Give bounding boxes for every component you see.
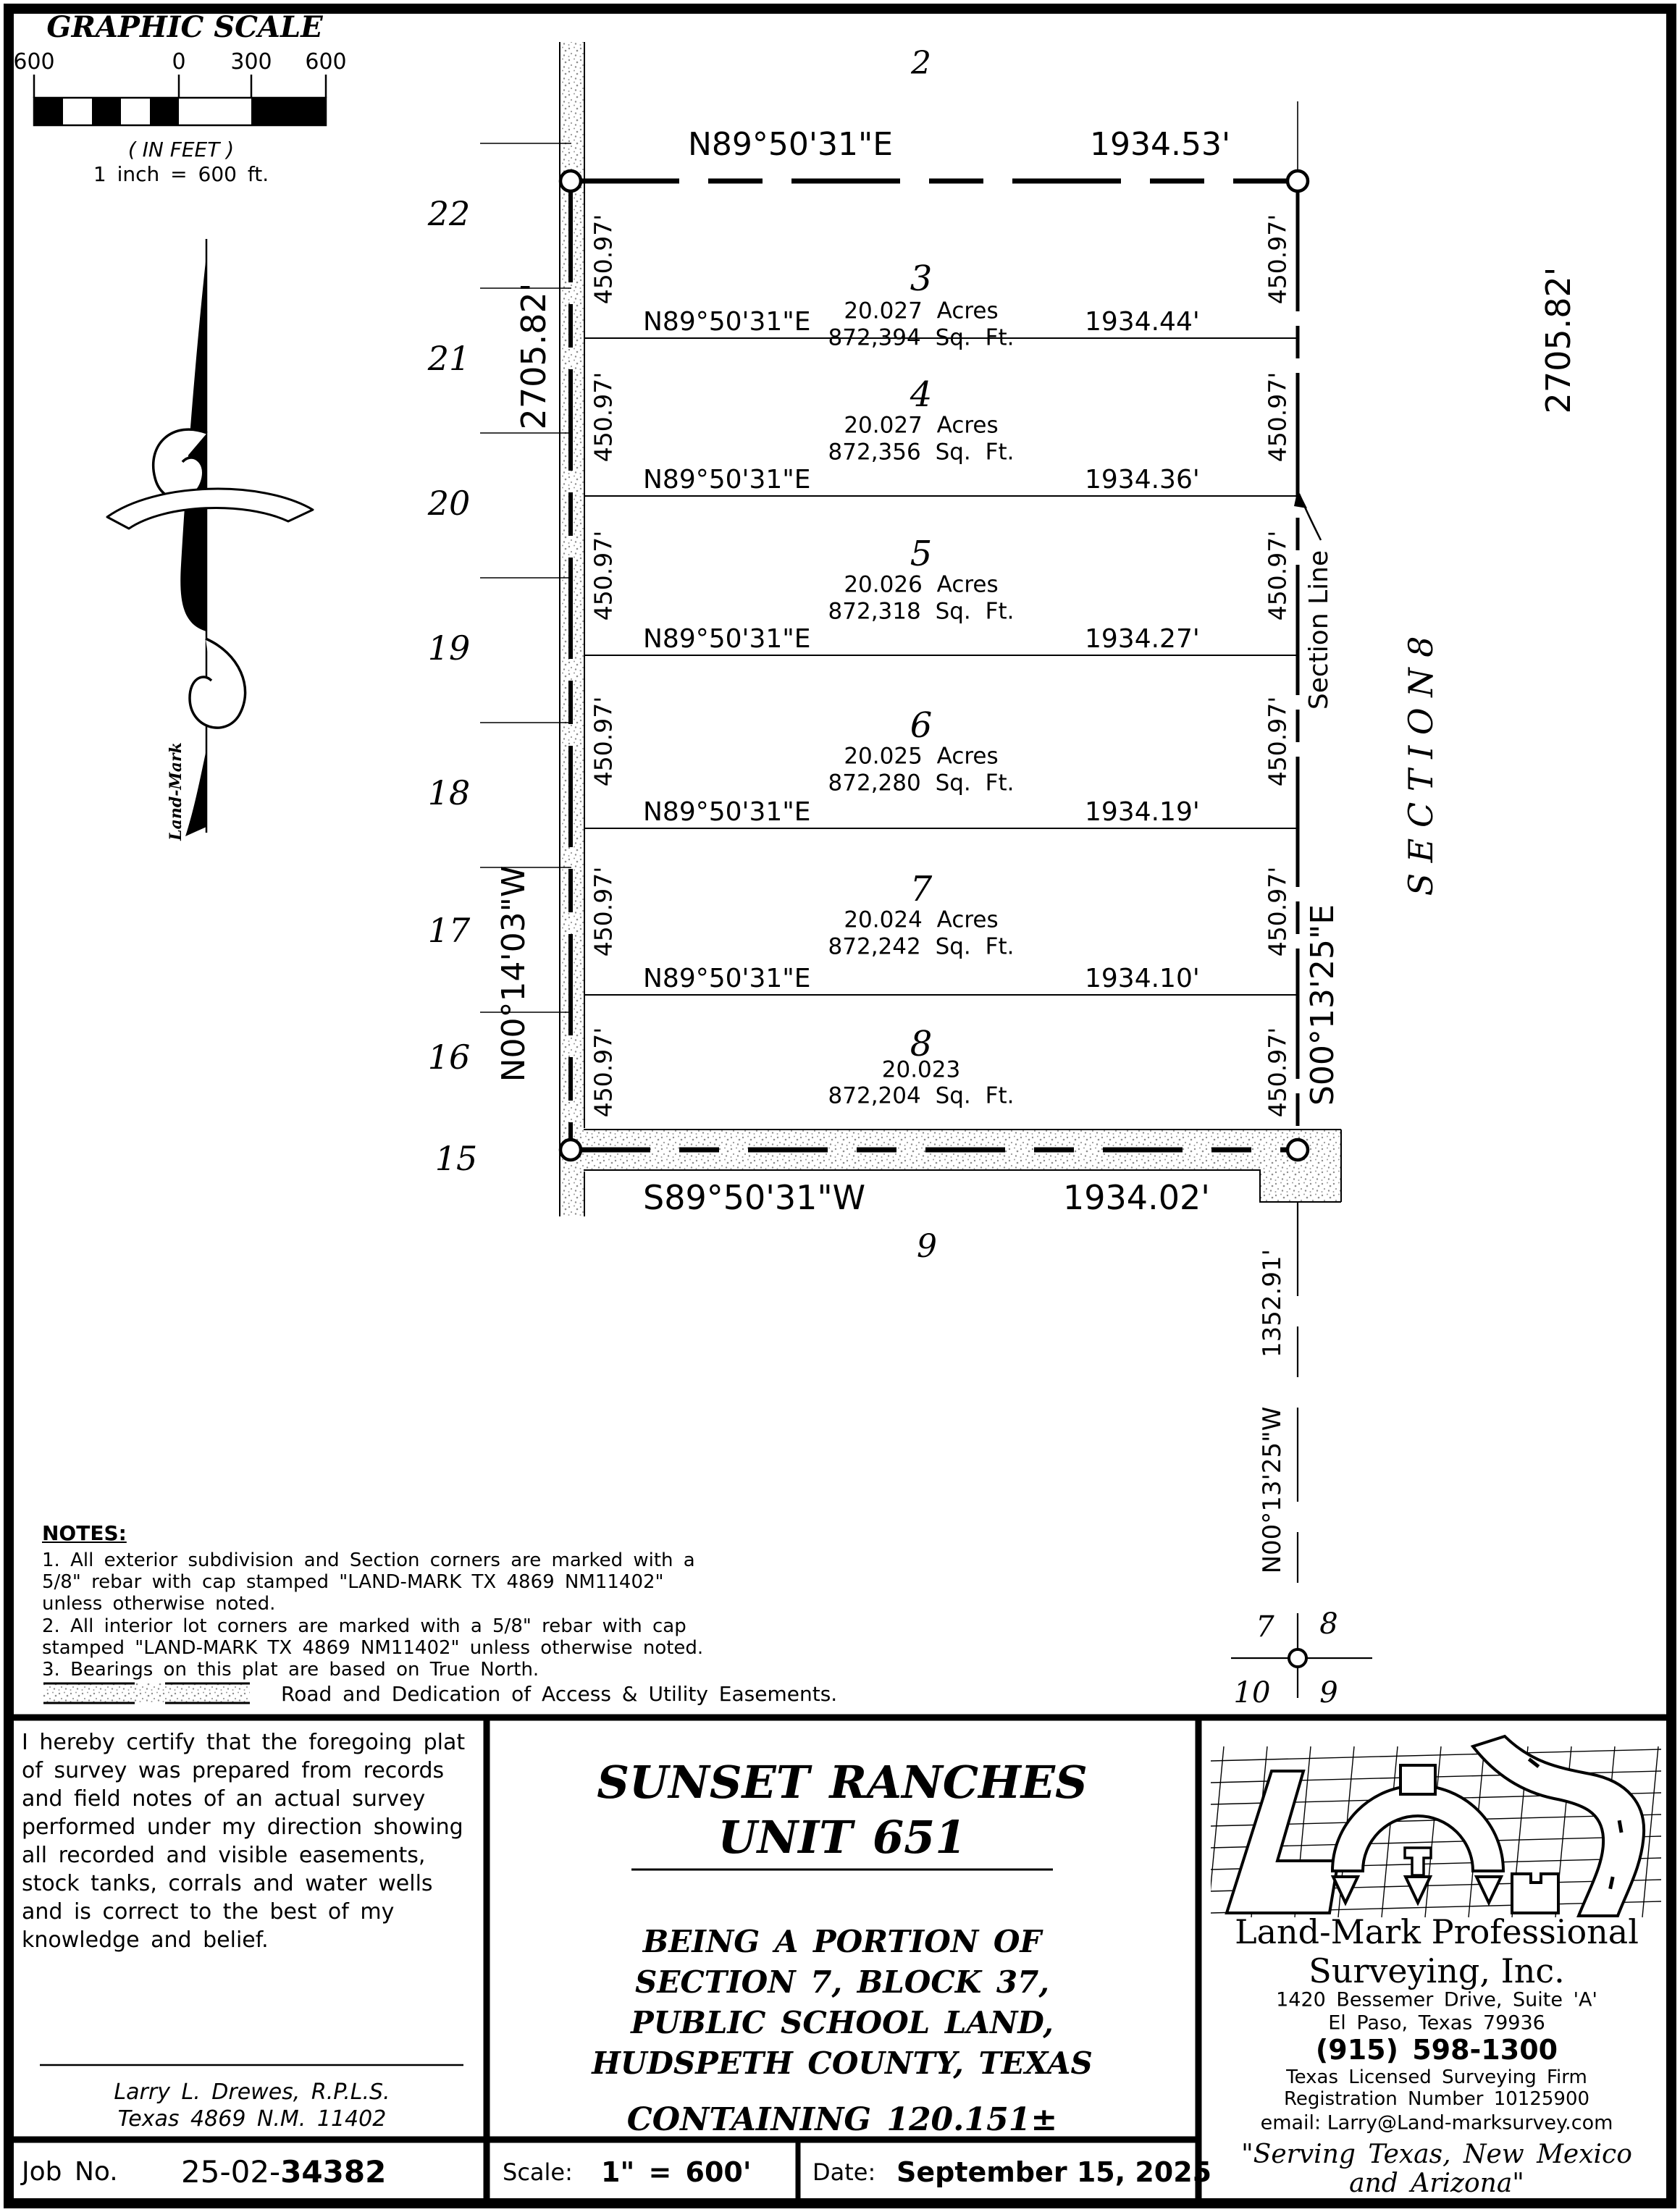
neighbor-lot-west: 16 (428, 1040, 471, 1074)
neighbor-lot-west: 18 (428, 776, 471, 809)
lot-side-east: 450.97' (1266, 1027, 1290, 1118)
scale-label: Scale: (503, 2161, 573, 2184)
note-line: stamped "LAND-MARK TX 4869 NM11402" unle… (42, 1639, 703, 1657)
east-boundary-distance: 2705.82' (1542, 267, 1575, 414)
note-line: 5/8" rebar with cap stamped "LAND-MARK T… (42, 1573, 663, 1591)
lot-side-west: 450.97' (592, 867, 616, 957)
certificate-line: and field notes of an actual survey (22, 1788, 425, 1810)
lot-line-distance: 1934.10' (1085, 966, 1200, 992)
notes-title: NOTES: (42, 1523, 127, 1544)
section-line-extension-bearing: N00°13'25"W (1260, 1407, 1285, 1574)
firm-email: email: Larry@Land-marksurvey.com (1261, 2114, 1613, 2133)
legend-road-easement-label: Road and Dedication of Access & Utility … (281, 1684, 837, 1704)
job-number-bold: 34382 (280, 2154, 386, 2190)
note-line: unless otherwise noted. (42, 1594, 275, 1613)
job-number-value: 25-02-34382 (181, 2157, 386, 2187)
lot-number: 4 (910, 377, 933, 412)
firm-name-line2: Surveying, Inc. (1309, 1954, 1565, 1988)
scale-tick-label: 0 (172, 51, 185, 73)
lot-side-west: 450.97' (592, 214, 616, 305)
section-corner-se: 9 (1319, 1678, 1337, 1707)
note-line: 1. All exterior subdivision and Section … (42, 1551, 695, 1570)
scale-tick-label: 600 (305, 51, 346, 73)
lot-acres: 20.024 Acres (844, 909, 998, 932)
firm-license-line2: Registration Number 10125900 (1284, 2090, 1589, 2108)
scale-value: 1" = 600' (601, 2158, 752, 2186)
firm-phone: (915) 598-1300 (1316, 2036, 1558, 2064)
job-number-label: Job No. (22, 2159, 118, 2185)
title-subtitle-line: BEING A PORTION OF (643, 1927, 1042, 1957)
surveyor-name: Larry L. Drewes, R.P.L.S. (114, 2082, 390, 2103)
date-label: Date: (812, 2161, 875, 2184)
subdivision-name: SUNSET RANCHES (597, 1760, 1088, 1805)
certificate-line: stock tanks, corrals and water wells (22, 1873, 433, 1895)
note-line: 3. Bearings on this plat are based on Tr… (42, 1660, 539, 1679)
neighbor-lot-west: 21 (428, 342, 471, 375)
certificate-line: I hereby certify that the foregoing plat (22, 1732, 465, 1754)
west-boundary-distance: 2705.82' (517, 283, 550, 430)
certificate-line: of survey was prepared from records (22, 1760, 444, 1782)
section-line-extension-distance: 1352.91' (1260, 1249, 1285, 1358)
lot-number: 7 (910, 872, 933, 907)
south-boundary-distance: 1934.02' (1063, 1181, 1210, 1214)
scale-tick-label: 300 (230, 51, 272, 73)
north-arrow-label: Land-Mark (168, 742, 184, 841)
east-boundary-bearing: S00°13'25"E (1307, 904, 1339, 1106)
section-corner-nw: 7 (1256, 1612, 1274, 1641)
lot-side-east: 450.97' (1266, 697, 1290, 787)
lot-line-distance: 1934.36' (1085, 467, 1200, 493)
section-corner-monument (1289, 1649, 1306, 1667)
certificate-line: all recorded and visible easements, (22, 1845, 425, 1867)
section-line-south (1231, 1202, 1372, 1698)
surveyor-license: Texas 4869 N.M. 11402 (118, 2108, 387, 2130)
road-easement-legend-swatch (43, 1681, 250, 1706)
graphic-scale-title: GRAPHIC SCALE (46, 13, 322, 42)
land-mark-logo (1208, 1736, 1661, 1917)
west-boundary-bearing: N00°14'03"W (498, 866, 530, 1082)
lot-side-east: 450.97' (1266, 214, 1290, 305)
subdivision-unit: UNIT 651 (718, 1815, 967, 1860)
section-corner-ne: 8 (1319, 1610, 1337, 1639)
lot-acres: 20.027 Acres (844, 300, 998, 323)
lot-sqft: 872,356 Sq. Ft. (828, 442, 1015, 464)
lot-side-west: 450.97' (592, 1027, 616, 1118)
lot-line-distance: 1934.44' (1085, 309, 1200, 335)
lot-line-bearing: N89°50'31"E (643, 467, 811, 493)
title-subtitle-line: PUBLIC SCHOOL LAND, (631, 2008, 1054, 2038)
survey-plat-sheet: GRAPHIC SCALE 600 0 300 600 ( IN FEET ) … (0, 0, 1680, 2212)
containing-acreage: CONTAINING 120.151± (627, 2104, 1057, 2136)
scale-caption: ( IN FEET ) (128, 140, 234, 160)
lot-line-bearing: N89°50'31"E (643, 799, 811, 825)
certificate-line: knowledge and belief. (22, 1930, 269, 1951)
scale-tick-label: 600 (13, 51, 54, 73)
firm-address-line1: 1420 Bessemer Drive, Suite 'A' (1276, 1990, 1597, 2010)
lot-line-bearing: N89°50'31"E (643, 309, 811, 335)
lot-sqft: 872,318 Sq. Ft. (828, 601, 1015, 623)
lot-side-east: 450.97' (1266, 531, 1290, 621)
neighbor-lot-south: 9 (917, 1231, 937, 1263)
certificate-line: and is correct to the best of my (22, 1901, 394, 1923)
south-boundary-bearing: S89°50'31"W (643, 1181, 865, 1214)
firm-address-line2: El Paso, Texas 79936 (1328, 2014, 1545, 2033)
lot-acres: 20.027 Acres (844, 415, 998, 437)
lot-line-distance: 1934.27' (1085, 626, 1200, 652)
neighbor-lot-west: 17 (428, 914, 471, 947)
lot-side-east: 450.97' (1266, 867, 1290, 957)
neighbor-lot-west: 22 (428, 197, 471, 230)
lot-acres: 20.025 Acres (844, 746, 998, 768)
certificate-line: performed under my direction showing (22, 1817, 463, 1838)
lot-line-distance: 1934.19' (1085, 799, 1200, 825)
neighbor-lot-west: 19 (428, 631, 471, 665)
lot-number: 3 (910, 261, 933, 296)
lot-side-west: 450.97' (592, 697, 616, 787)
lot-acres: 20.023 (882, 1059, 960, 1082)
north-arrow-icon (107, 239, 313, 836)
section-line-callout: Section Line (1306, 550, 1332, 710)
note-line: 2. All interior lot corners are marked w… (42, 1617, 686, 1636)
neighbor-lot-north: 2 (911, 48, 931, 80)
firm-license-line1: Texas Licensed Surveying Firm (1286, 2068, 1587, 2087)
lot-sqft: 872,204 Sq. Ft. (828, 1085, 1015, 1108)
date-value: September 15, 2025 (896, 2158, 1211, 2186)
neighbor-lot-west: 20 (428, 487, 471, 520)
section-8-label: S E C T I O N 8 (1404, 636, 1437, 896)
neighbor-lot-west: 15 (435, 1142, 478, 1175)
lot-sqft: 872,394 Sq. Ft. (828, 327, 1015, 350)
lot-number: 6 (910, 708, 933, 743)
lot-line-bearing: N89°50'31"E (643, 966, 811, 992)
firm-tagline-line1: "Serving Texas, New Mexico (1241, 2142, 1632, 2168)
lot-number: 5 (910, 537, 933, 571)
lot-sqft: 872,280 Sq. Ft. (828, 773, 1015, 795)
lot-sqft: 872,242 Sq. Ft. (828, 936, 1015, 959)
scale-equivalence: 1 inch = 600 ft. (93, 164, 269, 185)
lot-side-west: 450.97' (592, 531, 616, 621)
lot-line-bearing: N89°50'31"E (643, 626, 811, 652)
north-boundary-bearing: N89°50'31"E (688, 129, 893, 161)
firm-name-line1: Land-Mark Professional (1235, 1915, 1639, 1948)
title-subtitle-line: SECTION 7, BLOCK 37, (635, 1967, 1049, 1998)
title-subtitle-line: HUDSPETH COUNTY, TEXAS (592, 2048, 1093, 2079)
lot-acres: 20.026 Acres (844, 574, 998, 597)
section-corner-sw: 10 (1234, 1678, 1271, 1707)
page-edge-mark (4, 1699, 12, 1712)
job-number-prefix: 25-02- (181, 2154, 280, 2190)
north-boundary-distance: 1934.53' (1090, 129, 1230, 161)
graphic-scale-bar (34, 75, 326, 125)
firm-tagline-line2: and Arizona" (1349, 2171, 1524, 2197)
lot-side-east: 450.97' (1266, 372, 1290, 463)
lot-side-west: 450.97' (592, 372, 616, 463)
